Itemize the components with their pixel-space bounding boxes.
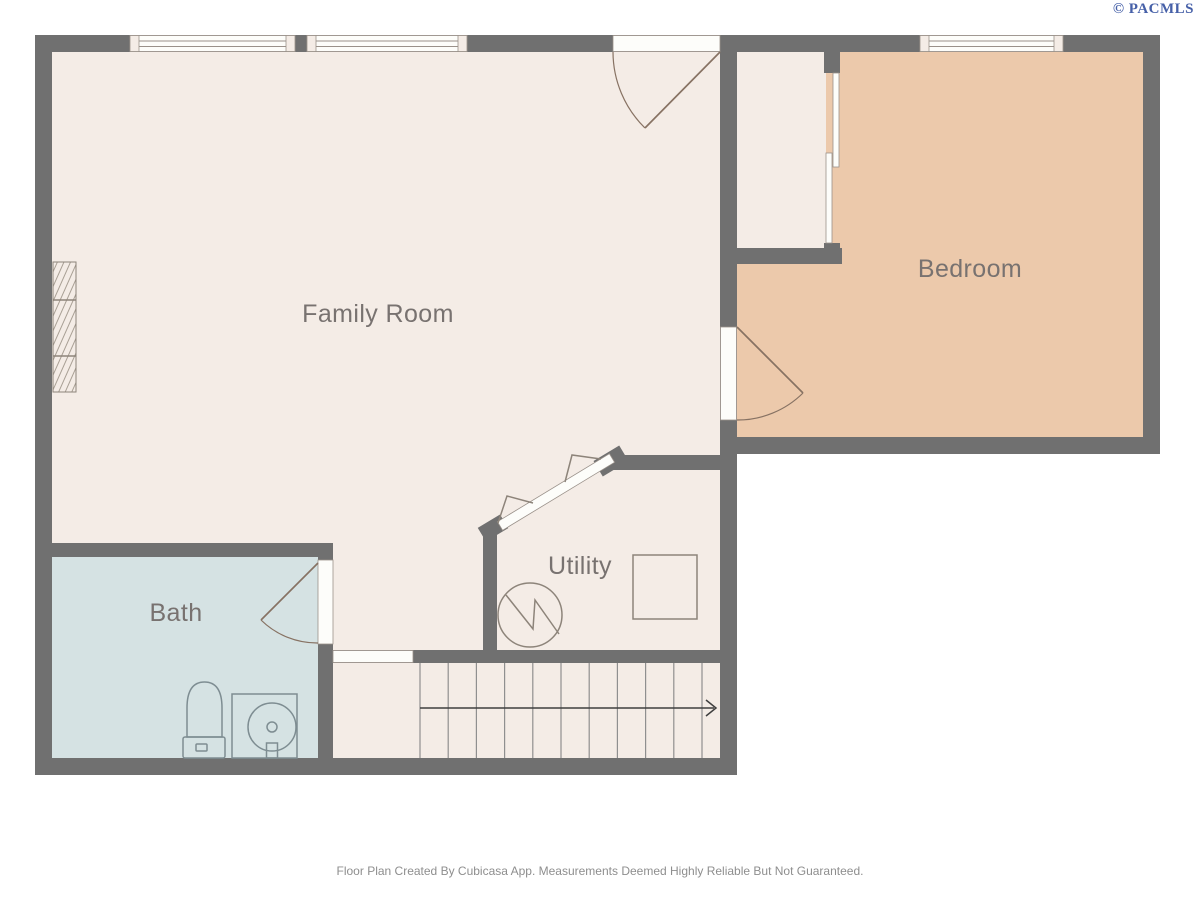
room-label-utility: Utility [548,552,612,580]
bath-area [50,555,318,760]
bedroom-closet-area [735,50,826,250]
wall-closet-bottom [720,248,842,264]
room-label-family-room: Family Room [302,300,454,328]
wall-closet-stub-top [824,52,840,73]
stairs-passage-opening [333,651,413,663]
floor-plan-page: © PACMLS [0,0,1200,900]
window-symbol [130,36,295,52]
room-fills [35,35,1160,775]
wall-bedroom-right [1143,35,1160,454]
wall-bedroom-bottom [720,437,1160,454]
wall-utility-top [610,455,737,470]
wall-left [35,35,52,775]
window-symbol [307,36,467,52]
room-label-bath: Bath [149,599,202,627]
window-symbol [920,36,1063,52]
wall-bath-top [35,543,333,557]
wall-bottom [35,758,737,775]
room-label-bedroom: Bedroom [918,255,1022,283]
wall-utility-left [483,530,497,663]
footer-disclaimer: Floor Plan Created By Cubicasa App. Meas… [0,864,1200,878]
wall-closet-stub-bottom [824,243,840,253]
floor-plan-canvas: Family Room Bedroom Bath Utility [0,0,1200,900]
fireplace-icon [53,262,76,392]
